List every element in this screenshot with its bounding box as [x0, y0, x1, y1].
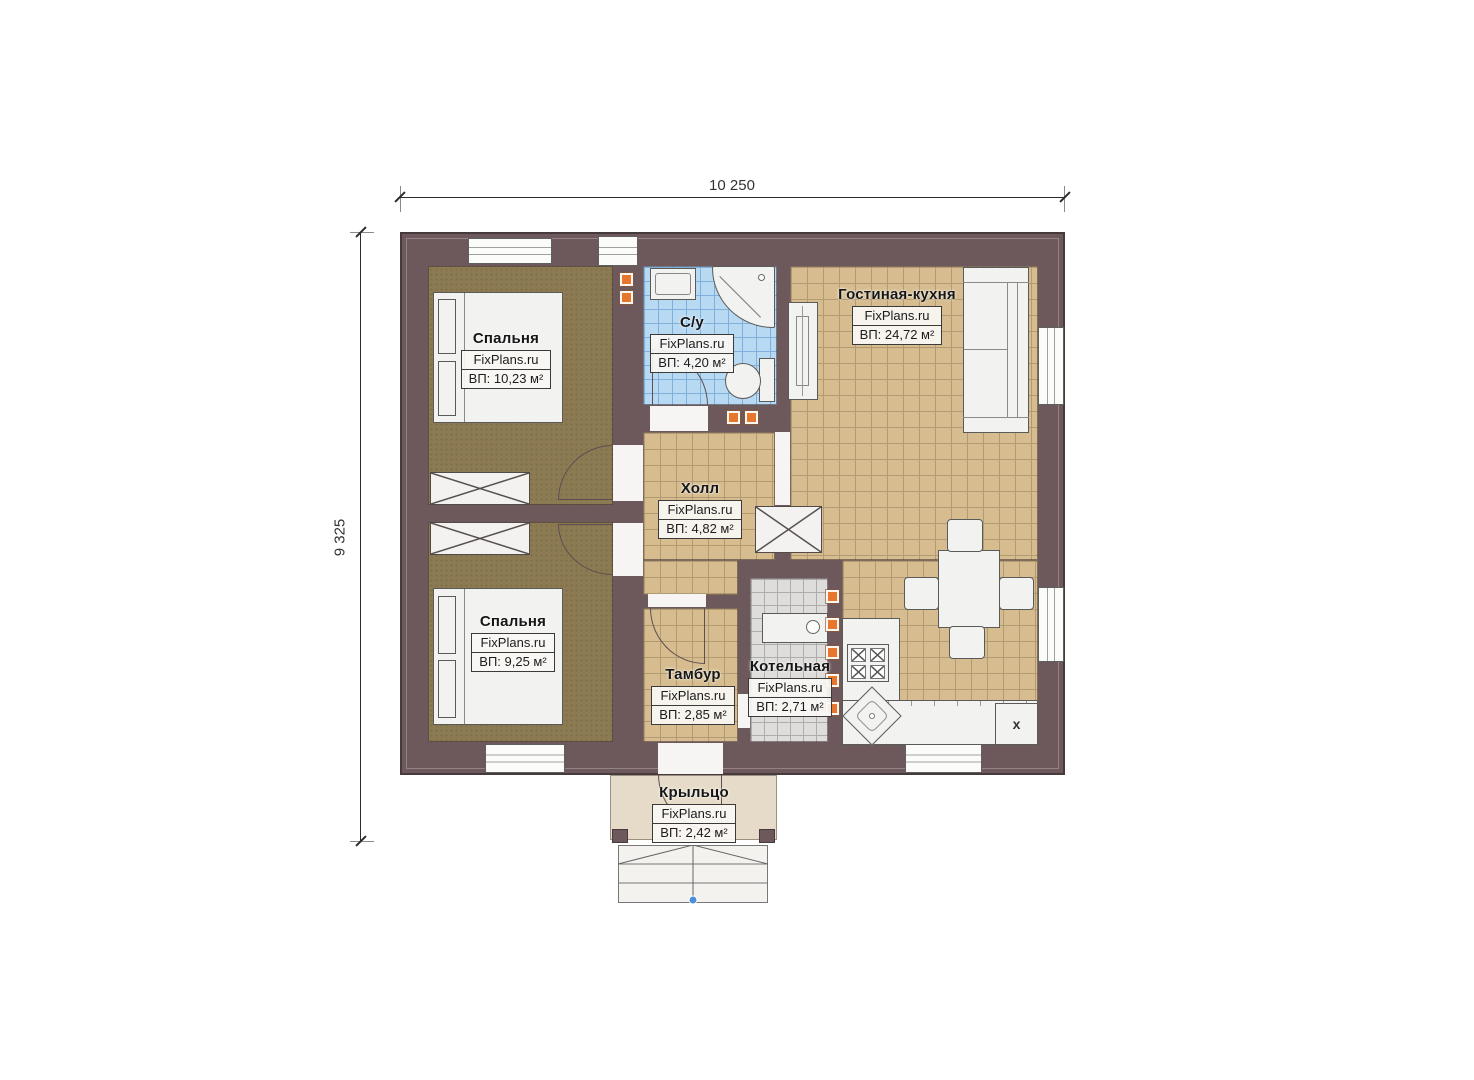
- door-opening-vestibule: [648, 594, 706, 607]
- room-label-bedroom-2: Спальня FixPlans.ru ВП: 9,25 м²: [443, 613, 583, 672]
- door-leaf-bedroom-2: [558, 524, 613, 525]
- chair: [904, 577, 939, 610]
- sofa-armrest: [963, 282, 1029, 283]
- room-name: С/у: [622, 314, 762, 331]
- stove-burner: [870, 648, 885, 662]
- room-area: ВП: 2,42 м²: [653, 823, 734, 842]
- vent-marker: [826, 590, 839, 603]
- room-label-box: FixPlans.ru ВП: 24,72 м²: [852, 306, 943, 345]
- door-leaf-vestibule: [704, 608, 705, 664]
- dim-label-width: 10 250: [662, 177, 802, 194]
- sofa-backrest: [1017, 283, 1018, 417]
- window-top-bedroom-1: [468, 238, 552, 264]
- window-top-bathroom: [598, 236, 638, 266]
- room-name: Крыльцо: [624, 784, 764, 801]
- watermark-text: FixPlans.ru: [653, 805, 734, 823]
- watermark-text: FixPlans.ru: [472, 634, 553, 652]
- sofa-armrest: [963, 417, 1029, 418]
- dimension-line-horizontal: [400, 197, 1065, 198]
- entrance-door-opening: [658, 743, 723, 774]
- window-bottom-kitchen: [905, 744, 982, 773]
- sofa-backrest: [1007, 283, 1008, 417]
- room-name: Котельная: [720, 658, 860, 675]
- room-label-box: FixPlans.ru ВП: 4,20 м²: [650, 334, 733, 373]
- room-name: Спальня: [436, 330, 576, 347]
- shower-head: [758, 274, 765, 281]
- room-label-box: FixPlans.ru ВП: 10,23 м²: [461, 350, 552, 389]
- room-name: Холл: [630, 480, 770, 497]
- radiator-line: [802, 306, 803, 396]
- room-area: ВП: 2,71 м²: [749, 697, 830, 716]
- room-area: ВП: 4,82 м²: [659, 519, 740, 538]
- floor-plan-canvas: 10 250 9 325: [0, 0, 1474, 1080]
- dim-label-height: 9 325: [332, 498, 349, 578]
- room-label-bathroom: С/у FixPlans.ru ВП: 4,20 м²: [622, 314, 762, 373]
- room-area: ВП: 24,72 м²: [853, 325, 942, 344]
- room-name: Гостиная-кухня: [827, 286, 967, 303]
- room-label-box: FixPlans.ru ВП: 2,42 м²: [652, 804, 735, 843]
- vent-marker: [727, 411, 740, 424]
- room-area: ВП: 9,25 м²: [472, 652, 553, 671]
- window-bottom-bedroom-2: [485, 744, 565, 773]
- watermark-text: FixPlans.ru: [651, 335, 732, 353]
- window-right-living-lower: [1038, 587, 1064, 662]
- room-label-porch: Крыльцо FixPlans.ru ВП: 2,42 м²: [624, 784, 764, 843]
- dining-table: [938, 550, 1000, 628]
- chair: [947, 519, 983, 552]
- wardrobe-bedroom-1: [430, 472, 530, 505]
- washbasin-bowl: [655, 273, 691, 295]
- chair: [999, 577, 1034, 610]
- door-opening-bathroom: [650, 406, 708, 431]
- vent-marker: [620, 291, 633, 304]
- blue-marker-dot: [689, 896, 697, 904]
- room-label-living-kitchen: Гостиная-кухня FixPlans.ru ВП: 24,72 м²: [827, 286, 967, 345]
- watermark-text: FixPlans.ru: [853, 307, 942, 325]
- vent-marker: [745, 411, 758, 424]
- room-area: ВП: 10,23 м²: [462, 369, 551, 388]
- sofa-seat-seam: [964, 349, 1007, 350]
- stove-burner: [870, 665, 885, 679]
- wardrobe-bedroom-2: [430, 522, 530, 555]
- sofa: [963, 267, 1029, 433]
- passage-hall-living: [775, 432, 790, 505]
- room-area: ВП: 4,20 м²: [651, 353, 732, 372]
- room-label-box: FixPlans.ru ВП: 2,71 м²: [748, 678, 831, 717]
- porch-steps: [618, 845, 768, 905]
- hall-floor-extension: [643, 560, 738, 595]
- watermark-text: FixPlans.ru: [659, 501, 740, 519]
- vent-marker: [826, 618, 839, 631]
- room-name: Спальня: [443, 613, 583, 630]
- room-label-box: FixPlans.ru ВП: 9,25 м²: [471, 633, 554, 672]
- dim-extension-left: [400, 186, 401, 212]
- room-label-box: FixPlans.ru ВП: 4,82 м²: [658, 500, 741, 539]
- watermark-text: FixPlans.ru: [749, 679, 830, 697]
- window-right-living-upper: [1038, 327, 1064, 405]
- room-label-bedroom-1: Спальня FixPlans.ru ВП: 10,23 м²: [436, 330, 576, 389]
- marked-appliance: x: [995, 703, 1038, 745]
- vent-marker: [620, 273, 633, 286]
- door-leaf-bedroom-1: [558, 499, 613, 500]
- chair: [949, 626, 985, 659]
- boiler-circle: [806, 620, 820, 634]
- room-label-boiler-room: Котельная FixPlans.ru ВП: 2,71 м²: [720, 658, 860, 717]
- room-label-hall: Холл FixPlans.ru ВП: 4,82 м²: [630, 480, 770, 539]
- watermark-text: FixPlans.ru: [462, 351, 551, 369]
- dimension-line-vertical: [360, 232, 361, 842]
